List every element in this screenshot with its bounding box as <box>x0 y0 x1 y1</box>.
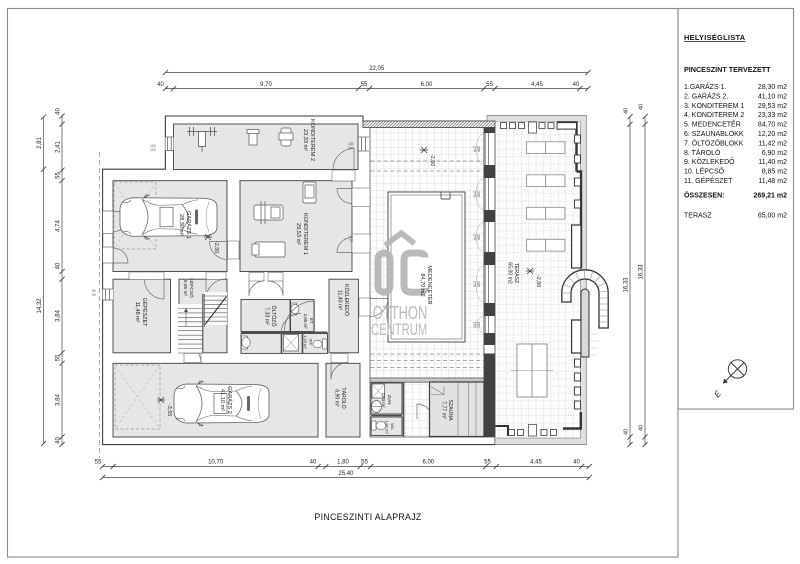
svg-text:12,20 m2: 12,20 m2 <box>758 131 787 138</box>
svg-text:55: 55 <box>56 172 62 179</box>
svg-text:8. TÁROLÓ: 8. TÁROLÓ <box>684 148 721 157</box>
svg-text:55: 55 <box>361 82 368 88</box>
svg-text:ÖLTÖZŐ7,33 m²: ÖLTÖZŐ7,33 m² <box>263 306 277 327</box>
svg-text:84,70 m2: 84,70 m2 <box>758 122 787 129</box>
svg-text:1,80: 1,80 <box>337 460 349 466</box>
svg-text:4,45: 4,45 <box>530 460 542 466</box>
svg-text:4,74: 4,74 <box>56 220 62 232</box>
svg-text:CENTRUM: CENTRUM <box>371 321 427 339</box>
svg-text:16,33: 16,33 <box>639 264 645 280</box>
svg-text:2. GARÁZS 2.: 2. GARÁZS 2. <box>684 91 728 100</box>
svg-text:23,33 m2: 23,33 m2 <box>758 112 787 119</box>
svg-text:160270: 160270 <box>473 234 481 240</box>
svg-text:-3,55: -3,55 <box>166 404 172 416</box>
svg-text:40: 40 <box>310 460 317 466</box>
svg-text:14,32: 14,32 <box>37 298 43 314</box>
svg-text:9. KÖZLEKEDŐ: 9. KÖZLEKEDŐ <box>684 157 735 166</box>
svg-text:-2,50: -2,50 <box>429 154 435 166</box>
svg-text:40: 40 <box>639 104 645 110</box>
svg-text:160270: 160270 <box>473 322 481 328</box>
svg-text:269,21 m2: 269,21 m2 <box>754 193 788 200</box>
svg-text:160270: 160270 <box>473 281 481 287</box>
svg-text:4. KONDITEREM 2: 4. KONDITEREM 2 <box>684 112 744 119</box>
svg-text:10. LÉPCSŐ: 10. LÉPCSŐ <box>684 167 725 176</box>
svg-text:120: 120 <box>150 148 156 152</box>
svg-text:3,84: 3,84 <box>56 394 62 406</box>
svg-text:40: 40 <box>639 425 645 431</box>
svg-text:40: 40 <box>573 82 580 88</box>
svg-text:22,05: 22,05 <box>369 66 385 72</box>
svg-text:11. GÉPÉSZET: 11. GÉPÉSZET <box>684 176 733 185</box>
svg-text:TERASZ65,00 m2: TERASZ65,00 m2 <box>506 262 519 284</box>
svg-text:98: 98 <box>350 239 354 243</box>
svg-text:41,10 m2: 41,10 m2 <box>758 93 787 100</box>
svg-text:55: 55 <box>361 460 368 466</box>
svg-text:6. SZAUNABLOKK: 6. SZAUNABLOKK <box>684 131 744 138</box>
svg-text:11,40 m2: 11,40 m2 <box>758 159 787 166</box>
svg-text:16,33: 16,33 <box>624 277 630 293</box>
svg-text:65,00 m2: 65,00 m2 <box>758 213 787 220</box>
svg-text:11,48 m2: 11,48 m2 <box>758 178 787 185</box>
svg-text:11,42 m2: 11,42 m2 <box>758 140 787 147</box>
svg-text:2,41: 2,41 <box>56 141 62 153</box>
svg-text:9,70: 9,70 <box>260 82 272 88</box>
svg-text:90: 90 <box>92 293 96 297</box>
svg-text:28,30 m2: 28,30 m2 <box>758 84 787 91</box>
svg-text:-2,50: -2,50 <box>535 275 541 287</box>
svg-text:160270: 160270 <box>473 146 481 152</box>
svg-text:40: 40 <box>56 108 62 115</box>
svg-text:PINCESZINT TERVEZETT: PINCESZINT TERVEZETT <box>684 65 771 74</box>
svg-text:PINCESZINTI ALAPRAJZ: PINCESZINTI ALAPRAJZ <box>314 512 422 522</box>
svg-text:29,53 m2: 29,53 m2 <box>758 103 787 110</box>
svg-text:4,45: 4,45 <box>531 82 543 88</box>
svg-text:TERASZ: TERASZ <box>684 213 712 220</box>
svg-text:1.GARÁZS 1.: 1.GARÁZS 1. <box>684 82 726 91</box>
svg-text:6,00: 6,00 <box>421 82 433 88</box>
svg-text:3,84: 3,84 <box>56 310 62 322</box>
svg-text:6,90 m2: 6,90 m2 <box>762 150 787 157</box>
svg-text:55: 55 <box>56 354 62 361</box>
svg-text:55: 55 <box>486 82 493 88</box>
svg-text:HELYISÉGLISTA: HELYISÉGLISTA <box>684 33 746 42</box>
svg-text:3. KONDITEREM 1: 3. KONDITEREM 1 <box>684 103 744 110</box>
svg-text:160270: 160270 <box>473 191 481 197</box>
svg-text:40: 40 <box>56 262 62 269</box>
svg-text:40: 40 <box>573 460 580 466</box>
svg-text:SZAUNA7,77 m²: SZAUNA7,77 m² <box>440 399 453 421</box>
svg-text:7. ÖLTÖZŐBLOKK: 7. ÖLTÖZŐBLOKK <box>684 138 744 147</box>
svg-text:40: 40 <box>157 82 164 88</box>
svg-text:2,81: 2,81 <box>37 137 43 149</box>
svg-text:ÖSSZESEN:: ÖSSZESEN: <box>684 191 724 200</box>
svg-text:6,00: 6,00 <box>422 460 434 466</box>
svg-text:TÁROLÓ6,90 m²: TÁROLÓ6,90 m² <box>333 387 347 408</box>
svg-text:55: 55 <box>95 460 102 466</box>
svg-text:OTTHON: OTTHON <box>373 303 428 323</box>
svg-text:LÉPCSŐ8,85 m²: LÉPCSŐ8,85 m² <box>182 278 195 298</box>
svg-text:40: 40 <box>624 108 630 114</box>
svg-text:55: 55 <box>484 460 491 466</box>
svg-text:5. MEDENCETÉR: 5. MEDENCETÉR <box>684 120 741 129</box>
svg-text:-2,50: -2,50 <box>213 241 219 253</box>
svg-text:10,70: 10,70 <box>208 460 224 466</box>
svg-text:40: 40 <box>624 429 630 435</box>
svg-text:25,40: 25,40 <box>338 471 354 477</box>
svg-text:8,85 m2: 8,85 m2 <box>762 169 787 176</box>
svg-text:40: 40 <box>56 437 62 444</box>
